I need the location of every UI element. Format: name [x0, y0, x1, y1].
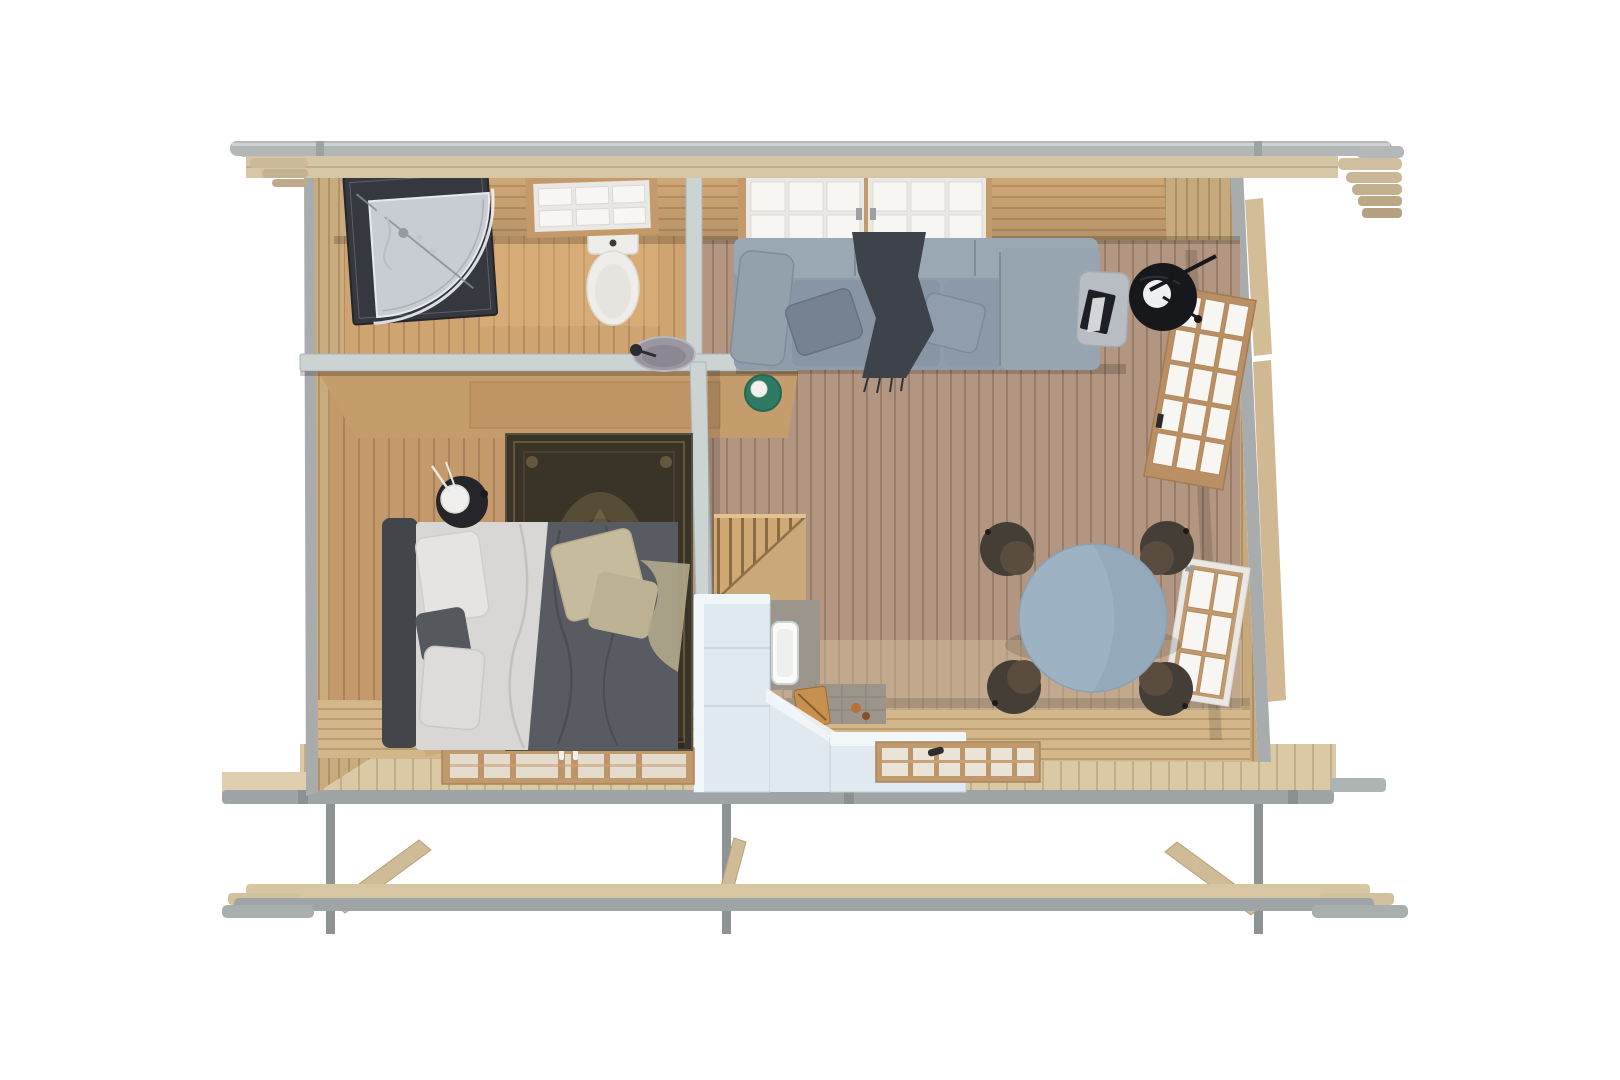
deck-edge-strip [222, 790, 1334, 804]
cabinet-top-cap [694, 594, 770, 604]
fascia-seam [246, 166, 1338, 168]
ridge-joint [1254, 141, 1262, 156]
kitchen-window [876, 742, 1040, 782]
dining-table [1019, 544, 1167, 692]
bath-living-partition [686, 164, 702, 362]
green-table-cup [751, 381, 767, 397]
staircase [714, 514, 806, 602]
basin-faucet [630, 344, 642, 356]
rug-motif [660, 456, 672, 468]
ottoman [1076, 271, 1130, 348]
bed-window-handle [559, 750, 564, 760]
sofa-arm-cushion [729, 250, 794, 367]
bath-bedroom-partition-top [300, 354, 798, 371]
cabin-render [0, 0, 1620, 1080]
dining-chair [1140, 521, 1194, 575]
toilet-seat [595, 264, 631, 318]
nightstand-knob [480, 490, 488, 498]
rail-cap-right [1312, 905, 1408, 918]
dining-chair [980, 522, 1034, 576]
kitchen-sink-basin [777, 629, 793, 677]
sofa [729, 232, 1100, 393]
green-side-table [745, 375, 781, 411]
toilet [587, 230, 639, 325]
foundation-post-left [326, 800, 335, 934]
rail-cap-left [222, 905, 314, 918]
toilet-flush-button [610, 240, 617, 247]
dining-chair [987, 660, 1041, 714]
kitchen-jar-small [862, 712, 870, 720]
ridge-right-step [1356, 146, 1404, 158]
bed-headboard [382, 518, 418, 748]
big-window-handle [870, 208, 876, 220]
bed-window-rail [450, 764, 686, 767]
cabin-floorplan-svg [0, 0, 1620, 1080]
ridge-highlight [232, 143, 1390, 146]
dining-chair [1139, 662, 1193, 716]
bedroom-door-panel [470, 382, 720, 428]
rug-motif [526, 456, 538, 468]
foundation-rail-cap [234, 898, 1374, 911]
kitchen-jar [851, 703, 861, 713]
ridge-joint [316, 141, 324, 156]
cabinet-edge-highlight [694, 598, 704, 792]
double-bed [382, 518, 690, 750]
bed-window-handle [573, 750, 578, 760]
basin-inner [642, 345, 686, 367]
stair-landing-edge [714, 514, 806, 518]
partition-shadow [300, 371, 798, 376]
corner-shower [343, 167, 501, 325]
foundation-post-right [1254, 800, 1263, 934]
bed-pillow-white-2 [419, 646, 486, 731]
kitchen-window-rail [882, 760, 1034, 763]
kitchen-cabinet-tall [694, 598, 770, 792]
arc-lamp-foot [1194, 315, 1202, 323]
deck-strip-right-step [1330, 778, 1386, 792]
bathroom-window [525, 174, 659, 239]
big-window-handle [856, 208, 862, 220]
deck-strip-joint [1288, 790, 1298, 804]
